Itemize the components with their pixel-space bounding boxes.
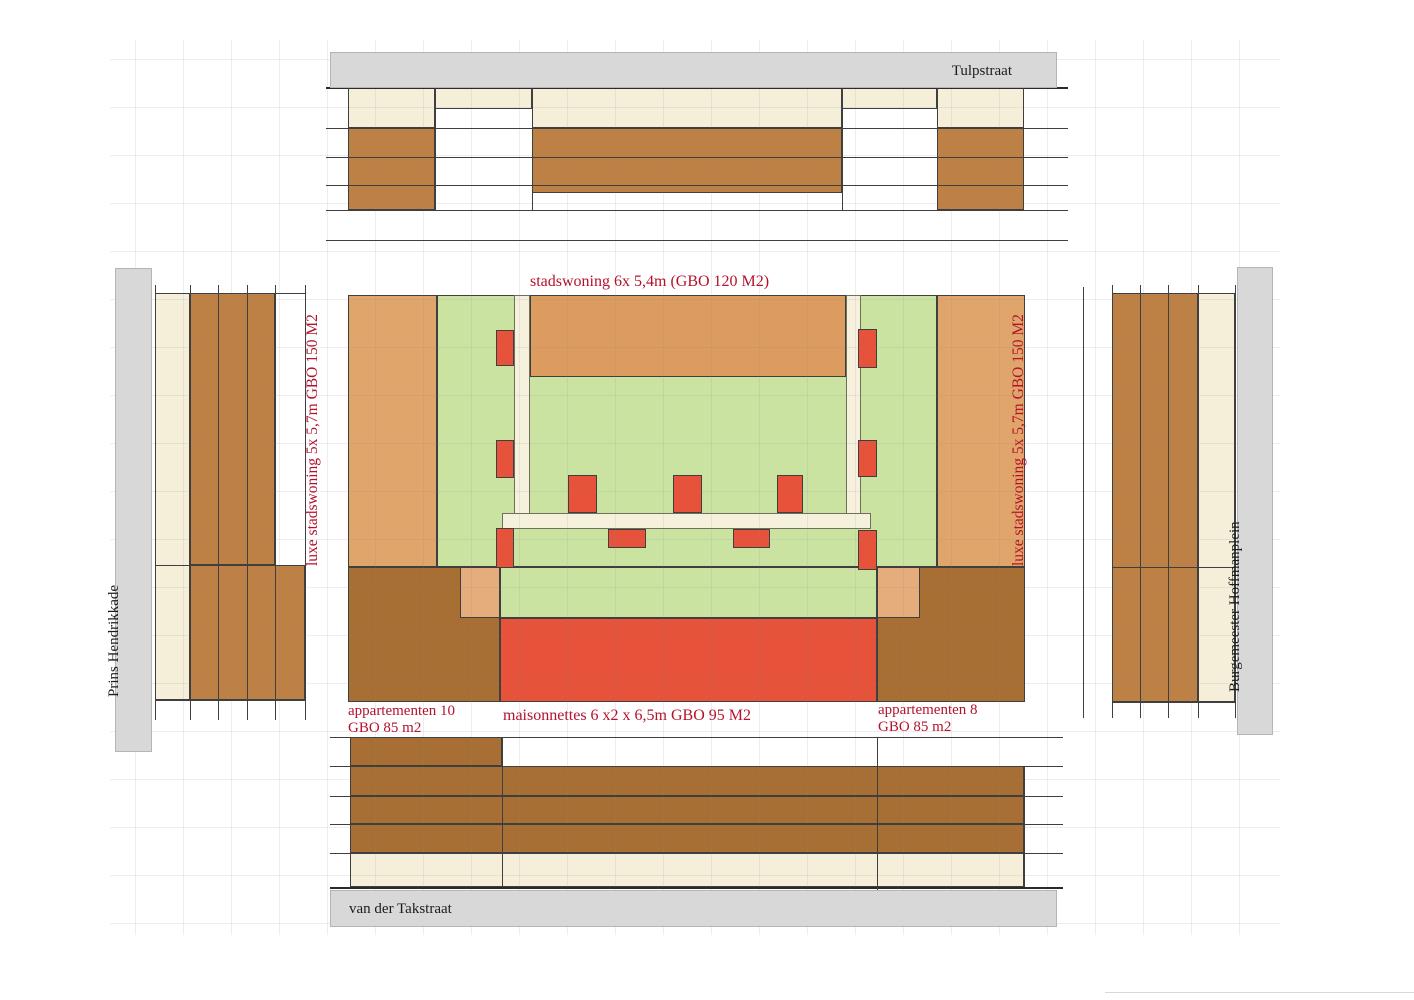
plan-white-bar-horizontal (502, 513, 871, 529)
plot-divider-line (877, 737, 878, 890)
plot-divider-line (502, 737, 503, 887)
top-block-brown-middle (532, 128, 842, 193)
plan-white-bar-left (514, 295, 530, 529)
plan-tan-notch-right (877, 567, 920, 618)
floor-line (1112, 702, 1235, 703)
boundary-line (1083, 287, 1084, 718)
plot-divider-line (348, 88, 349, 210)
plot-divider-line (1140, 285, 1141, 718)
street-label-tulpstraat: Tulpstraat (952, 53, 1012, 89)
plan-stadswoning-row (530, 295, 846, 377)
plot-divider-line (1112, 285, 1113, 718)
bottom-row-brown-2 (350, 796, 1024, 824)
label-luxe-stadswoning-right: luxe stadswoning 5x 5,7m GBO 150 M2 (1009, 314, 1028, 566)
label-stadswoning: stadswoning 6x 5,4m (GBO 120 M2) (530, 272, 769, 291)
bottom-block-brown-small (350, 737, 502, 766)
plot-divider-line (532, 88, 533, 210)
plot-divider-line (247, 285, 248, 720)
street-label-burgemeester-hoffmanplein: Burgemeester Hoffmanplein (1226, 521, 1245, 692)
plot-divider-line (1023, 88, 1024, 210)
site-plan-canvas: Tulpstraat van der Takstraat Prins Hendr… (0, 0, 1414, 1000)
floor-line (155, 565, 305, 566)
floor-line (326, 128, 1068, 129)
label-appartementen-10-line2: GBO 85 m2 (348, 720, 455, 737)
plot-divider-line (155, 285, 156, 720)
label-appartementen-10-line1: appartementen 10 (348, 703, 455, 720)
top-block-brown-left (348, 128, 435, 210)
street-label-van-der-takstraat: van der Takstraat (349, 891, 452, 928)
red-unit-block (858, 440, 877, 477)
plot-divider-line (1198, 285, 1199, 718)
floor-line (330, 796, 1063, 797)
right-wing-brown-column (1112, 293, 1198, 702)
red-unit-block (858, 530, 877, 570)
red-unit-block (777, 475, 803, 513)
red-unit-block (496, 528, 514, 568)
label-maisonnettes: maisonnettes 6 x2 x 6,5m GBO 95 M2 (503, 706, 751, 725)
red-unit-block (673, 475, 702, 513)
top-block-cream-2 (435, 88, 532, 109)
red-unit-block (858, 329, 877, 368)
plot-divider-line (350, 737, 351, 887)
red-unit-block (608, 529, 646, 548)
floor-line (330, 887, 1063, 889)
floor-line (326, 185, 1068, 186)
left-wing-cream-column (155, 293, 190, 700)
plot-divider-line (435, 88, 436, 210)
plan-green-lower (500, 567, 877, 618)
red-unit-block (496, 440, 514, 478)
red-unit-block (733, 529, 770, 548)
floor-line (155, 293, 305, 294)
top-block-cream-1 (348, 88, 435, 128)
plot-divider-line (937, 88, 938, 210)
plan-tan-notch-left (460, 567, 500, 618)
label-appartementen-8-line2: GBO 85 m2 (878, 719, 978, 736)
bottom-row-brown-3 (350, 824, 1024, 853)
street-bar-tulpstraat: Tulpstraat (330, 52, 1057, 88)
plot-divider-line (1024, 766, 1025, 887)
floor-line (1112, 567, 1235, 568)
bottom-row-cream (350, 853, 1024, 887)
floor-line (155, 700, 305, 701)
floor-line (330, 737, 1063, 738)
top-block-brown-right (937, 128, 1024, 210)
plan-tan-column-left (348, 295, 437, 567)
floor-line (330, 766, 1063, 767)
frame-edge-line (1105, 992, 1414, 993)
red-unit-block (568, 475, 597, 513)
label-appartementen-8: appartementen 8 GBO 85 m2 (878, 702, 978, 736)
plot-divider-line (842, 88, 843, 210)
plan-red-maisonnettes-block (500, 618, 877, 702)
plot-divider-line (218, 285, 219, 720)
floor-line (326, 210, 1068, 211)
floor-line (330, 824, 1063, 825)
label-appartementen-8-line1: appartementen 8 (878, 702, 978, 719)
top-block-cream-5 (937, 88, 1024, 128)
top-block-cream-4 (842, 88, 937, 109)
floor-line (326, 240, 1068, 241)
label-appartementen-10: appartementen 10 GBO 85 m2 (348, 703, 455, 737)
plot-divider-line (190, 285, 191, 720)
street-bar-van-der-takstraat: van der Takstraat (330, 890, 1057, 927)
floor-line (1112, 293, 1235, 294)
floor-line (330, 853, 1063, 854)
street-label-prins-hendrikkade: Prins Hendrikkade (105, 585, 124, 697)
bottom-row-brown-1 (350, 766, 1024, 796)
plot-divider-line (1168, 285, 1169, 718)
left-wing-brown-upper (190, 293, 275, 565)
floor-line (326, 157, 1068, 158)
top-block-cream-3 (532, 88, 842, 128)
plot-divider-line (275, 285, 276, 720)
red-unit-block (496, 330, 514, 366)
label-luxe-stadswoning-left: luxe stadswoning 5x 5,7m GBO 150 M2 (303, 314, 322, 566)
